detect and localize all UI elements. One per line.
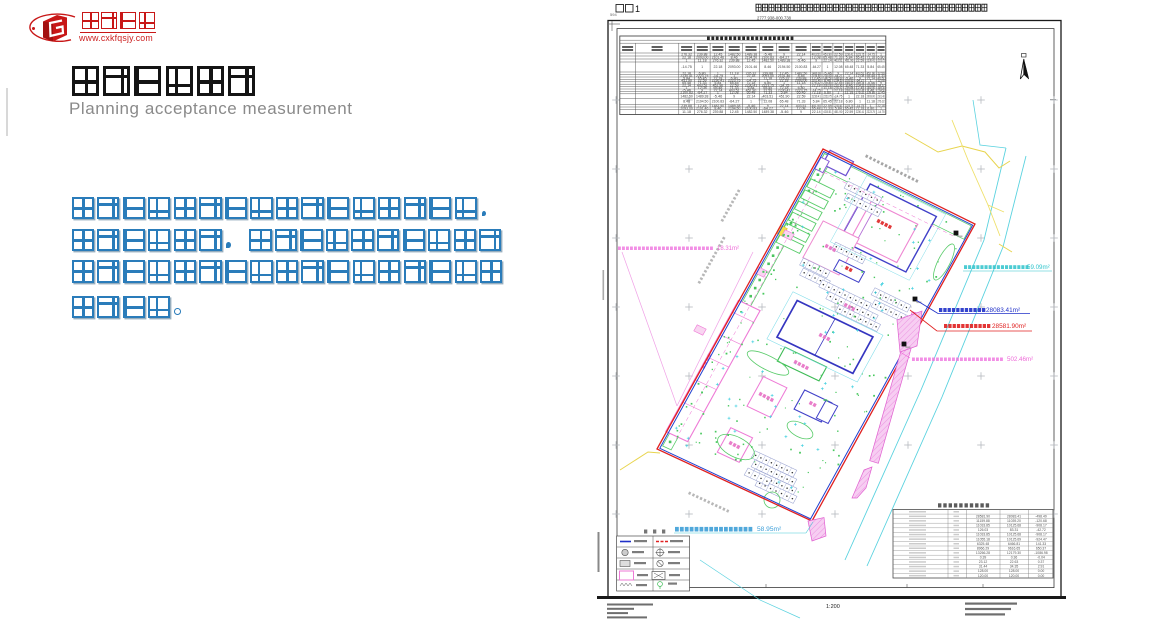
svg-text:-5.46: -5.46 [797,59,806,63]
svg-text:1: 1 [827,65,829,69]
svg-text:-42.72: -42.72 [1036,528,1046,532]
svg-text:11033.85: 11033.85 [976,533,990,537]
svg-text:2100.83: 2100.83 [795,65,808,69]
svg-text:239.88: 239.88 [729,59,740,63]
svg-text:0.36: 0.36 [1011,556,1018,560]
svg-text:10125.69: 10125.69 [1007,537,1021,541]
svg-text:403.51: 403.51 [763,94,774,98]
svg-text:6325.48: 6325.48 [977,542,989,546]
svg-text:12179.30: 12179.30 [1007,551,1021,555]
svg-text:11159.88: 11159.88 [976,519,990,523]
svg-text:-498.49: -498.49 [1035,515,1047,519]
svg-text:128.00: 128.00 [1009,569,1019,573]
svg-text:22.59: 22.59 [797,94,806,98]
svg-text:-1086.98: -1086.98 [1034,551,1047,555]
svg-text:31.44: 31.44 [979,565,988,569]
svg-text:11055.18: 11055.18 [976,537,990,541]
svg-text:71.33: 71.33 [856,65,865,69]
svg-text:-14.75: -14.75 [681,65,692,69]
svg-text:22.14: 22.14 [812,110,821,114]
svg-text:10125.68: 10125.68 [1007,533,1021,537]
svg-text:120.00: 120.00 [978,574,988,578]
svg-text:22.59: 22.59 [856,59,865,63]
svg-text:12.45: 12.45 [730,110,739,114]
svg-text:2223.75: 2223.75 [867,110,875,114]
svg-text:0.00: 0.00 [1038,574,1045,578]
svg-text:58.95m²: 58.95m² [757,526,782,533]
svg-text:128.00: 128.00 [978,569,988,573]
svg-text:65.45: 65.45 [877,65,884,69]
svg-text:11.18: 11.18 [682,110,691,114]
svg-text:9616.65: 9616.65 [1008,546,1020,550]
svg-text:6466.81: 6466.81 [1008,542,1020,546]
svg-text:13266.28: 13266.28 [976,551,990,555]
svg-text:12.08: 12.08 [834,65,843,69]
svg-text:1: 1 [848,94,850,98]
svg-text:2093.00: 2093.00 [728,65,741,69]
svg-text:22.14: 22.14 [747,94,756,98]
svg-text:2230.41: 2230.41 [867,59,875,63]
svg-text:2.91: 2.91 [1038,565,1045,569]
svg-text:2101.46: 2101.46 [745,65,758,69]
svg-text:1482.50: 1482.50 [680,94,693,98]
svg-text:276.32: 276.32 [713,59,724,63]
svg-text:-924.47: -924.47 [1035,537,1047,541]
svg-text:1482.50: 1482.50 [745,110,758,114]
svg-text:-14.75: -14.75 [877,110,884,114]
svg-text:12.45: 12.45 [747,59,756,63]
svg-text:8966.29: 8966.29 [977,546,989,550]
svg-text:276.32: 276.32 [697,110,708,114]
svg-text:5.84: 5.84 [867,65,874,69]
svg-text:22.18: 22.18 [714,65,723,69]
svg-text:1482.50: 1482.50 [762,59,775,63]
svg-text:22.63: 22.63 [1010,560,1019,564]
svg-text:11.18: 11.18 [698,59,707,63]
svg-text:1: 1 [701,65,703,69]
svg-text:1489.38: 1489.38 [762,110,775,114]
svg-text:-14.75: -14.75 [834,94,843,98]
svg-text:59.09m²: 59.09m² [1027,264,1050,271]
svg-text:120.00: 120.00 [1009,574,1019,578]
svg-text:1: 1 [686,59,688,63]
svg-text:403.51: 403.51 [834,59,842,63]
svg-text:2194.50: 2194.50 [778,65,791,69]
svg-text:10125.68: 10125.68 [1007,524,1021,528]
svg-text:23.12: 23.12 [979,560,988,564]
svg-text:28581.90: 28581.90 [976,515,990,519]
svg-text:-908.17: -908.17 [1035,524,1047,528]
svg-text:22.18: 22.18 [856,94,865,98]
svg-text:2223.75: 2223.75 [823,94,832,98]
svg-text:2093.00: 2093.00 [867,94,875,98]
svg-text:502.46m²: 502.46m² [1007,356,1033,363]
svg-text:1:200: 1:200 [826,604,840,610]
svg-text:2223.75: 2223.75 [877,59,884,63]
svg-text:0.00: 0.00 [1038,569,1045,573]
svg-text:-120.68: -120.68 [1035,519,1047,523]
svg-text:2230.41: 2230.41 [856,110,865,114]
svg-text:451.90: 451.90 [834,110,842,114]
svg-text:18.31m²: 18.31m² [717,246,739,252]
svg-text:403.51: 403.51 [823,110,832,114]
svg-text:126.03: 126.03 [978,528,988,532]
svg-text:9: 9 [815,59,817,63]
svg-text:9: 9 [733,94,735,98]
svg-text:650.37: 650.37 [1036,546,1046,550]
svg-text:8.46: 8.46 [764,65,771,69]
svg-text:451.90: 451.90 [845,59,853,63]
svg-text:0.37: 0.37 [1038,560,1045,564]
svg-text:1489.38: 1489.38 [778,59,791,63]
svg-text:-5.46: -5.46 [780,110,789,114]
svg-text:34.35: 34.35 [1010,565,1019,569]
svg-text:2777.938-000.738: 2777.938-000.738 [757,16,792,21]
svg-text:451.90: 451.90 [779,94,790,98]
svg-text:-64.27: -64.27 [812,65,821,69]
svg-text:239.88: 239.88 [713,110,724,114]
svg-text:22.14: 22.14 [823,59,832,63]
svg-text:594: 594 [610,12,617,17]
svg-text:-908.17: -908.17 [1035,533,1047,537]
svg-text:28083.41m²: 28083.41m² [986,307,1020,314]
svg-text:2101.46: 2101.46 [877,94,884,98]
svg-text:1489.38: 1489.38 [696,94,709,98]
svg-text:-5.46: -5.46 [714,94,723,98]
svg-text:2230.41: 2230.41 [812,94,821,98]
svg-text:11033.85: 11033.85 [976,524,990,528]
svg-text:1: 1 [635,4,640,14]
svg-text:28083.41: 28083.41 [1007,515,1021,519]
svg-text:65.48: 65.48 [845,65,854,69]
svg-text:11039.20: 11039.20 [1007,519,1021,523]
svg-text:28581.90m²: 28581.90m² [992,323,1026,330]
svg-text:22.59: 22.59 [845,110,854,114]
svg-text:83.31: 83.31 [1010,528,1019,532]
svg-text:9: 9 [800,110,802,114]
svg-text:-0.04: -0.04 [1037,556,1045,560]
svg-text:141.33: 141.33 [1036,542,1046,546]
svg-text:0.39: 0.39 [980,556,987,560]
